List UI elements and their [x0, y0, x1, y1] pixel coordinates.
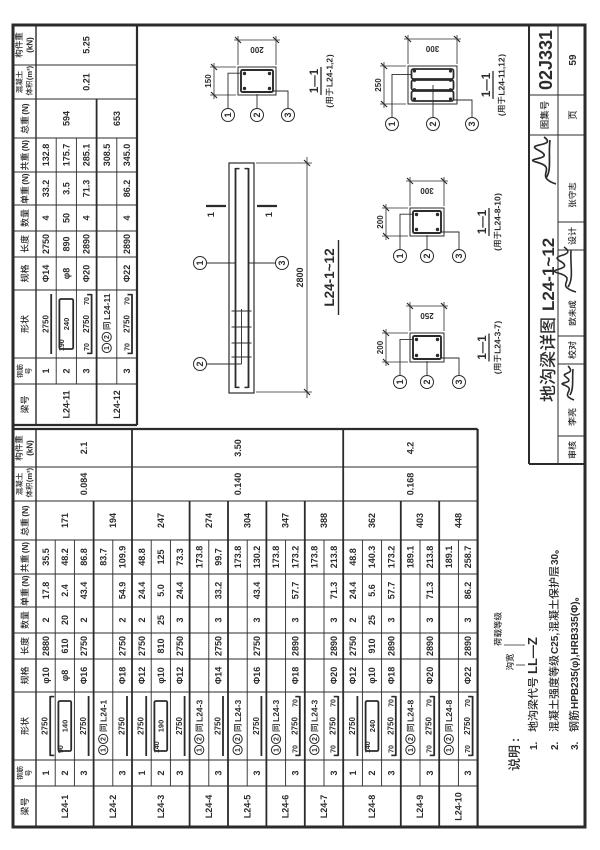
svg-text:189.1: 189.1	[406, 546, 416, 569]
svg-text:2: 2	[348, 617, 358, 622]
svg-text:3: 3	[290, 770, 300, 775]
svg-text:109.9: 109.9	[118, 546, 128, 569]
svg-text:L24-7: L24-7	[319, 795, 329, 819]
svg-text:Φ20: Φ20	[82, 265, 92, 282]
svg-text:71.3: 71.3	[425, 582, 435, 600]
svg-text:2: 2	[446, 737, 453, 741]
svg-text:2: 2	[235, 737, 242, 741]
svg-text:25: 25	[156, 615, 166, 625]
svg-text:2.4: 2.4	[60, 584, 70, 597]
svg-text:125: 125	[156, 549, 166, 564]
svg-text:3: 3	[82, 368, 92, 373]
svg-text:2750: 2750	[214, 717, 223, 735]
svg-text:L24-1: L24-1	[98, 700, 108, 722]
svg-text:2750: 2750	[41, 234, 51, 254]
svg-text:2890: 2890	[82, 234, 92, 254]
svg-text:2890: 2890	[290, 636, 300, 656]
svg-text:2: 2	[408, 737, 415, 741]
svg-text:300: 300	[420, 186, 434, 195]
svg-text:70: 70	[427, 699, 434, 707]
svg-text:2880: 2880	[41, 636, 51, 656]
svg-text:L24-1~12: L24-1~12	[322, 248, 337, 306]
svg-text:2750: 2750	[118, 717, 127, 735]
svg-text:24.4: 24.4	[348, 582, 358, 600]
svg-text:Φ14: Φ14	[214, 667, 224, 684]
svg-text:2750: 2750	[463, 717, 472, 735]
svg-text:L24-10: L24-10	[454, 792, 464, 821]
svg-text:2750: 2750	[348, 717, 357, 735]
svg-text:φ10: φ10	[156, 667, 166, 683]
svg-text:L24-6: L24-6	[281, 795, 291, 819]
svg-text:1: 1	[104, 346, 111, 350]
svg-text:2800: 2800	[295, 267, 305, 287]
svg-text:L24-8-10: L24-8-10	[493, 196, 503, 231]
svg-text:2750: 2750	[41, 717, 50, 735]
svg-text:388: 388	[319, 513, 329, 528]
svg-text:(: (	[325, 105, 335, 108]
svg-text:173.8: 173.8	[310, 546, 320, 569]
svg-text:1: 1	[235, 748, 242, 752]
svg-text:190: 190	[157, 720, 166, 733]
svg-text:130.2: 130.2	[252, 546, 262, 569]
svg-text:258.7: 258.7	[463, 546, 473, 569]
svg-text:403: 403	[415, 513, 425, 528]
svg-text:48.8: 48.8	[348, 548, 358, 566]
svg-text:L24-9: L24-9	[415, 795, 425, 819]
svg-text:Φ20: Φ20	[329, 667, 339, 684]
svg-text:213.8: 213.8	[425, 546, 435, 569]
svg-text:70: 70	[331, 699, 338, 707]
svg-text:448: 448	[454, 513, 464, 528]
svg-text:3: 3	[252, 617, 262, 622]
svg-text:1: 1	[137, 770, 147, 775]
svg-text:173.8: 173.8	[271, 546, 281, 569]
svg-text:Φ18: Φ18	[386, 667, 396, 684]
svg-text:3: 3	[175, 770, 185, 775]
svg-text:189.1: 189.1	[444, 546, 454, 569]
svg-text:2: 2	[118, 617, 128, 622]
svg-text:70: 70	[465, 699, 472, 707]
svg-text:3: 3	[454, 379, 464, 384]
svg-text::: :	[508, 738, 522, 742]
svg-text:90: 90	[58, 745, 65, 753]
svg-text:810: 810	[156, 638, 166, 653]
svg-text:5.0: 5.0	[156, 584, 166, 597]
svg-text:φ8: φ8	[62, 268, 72, 279]
svg-text:2750: 2750	[175, 717, 184, 735]
svg-text:285.1: 285.1	[82, 144, 92, 167]
svg-text:2890: 2890	[425, 636, 435, 656]
svg-text:L24-1~12: L24-1~12	[539, 238, 558, 311]
svg-text:3: 3	[122, 368, 132, 373]
svg-text:2750: 2750	[425, 717, 434, 735]
svg-text:φ8: φ8	[60, 670, 70, 681]
svg-text:1: 1	[41, 770, 51, 775]
svg-text:2: 2	[60, 770, 70, 775]
svg-text:Φ12: Φ12	[137, 667, 147, 684]
svg-text:Φ14: Φ14	[41, 265, 51, 282]
svg-text:653: 653	[112, 111, 122, 126]
svg-text:73.3: 73.3	[175, 548, 185, 566]
svg-text:308.5: 308.5	[102, 144, 112, 167]
svg-text:1: 1	[101, 748, 108, 752]
svg-text:33.2: 33.2	[214, 582, 224, 600]
svg-text:Φ16: Φ16	[252, 667, 262, 684]
svg-text:φ10: φ10	[41, 667, 51, 683]
svg-text:(m³): (m³)	[25, 467, 34, 482]
svg-text:594: 594	[62, 111, 72, 126]
svg-text:70: 70	[84, 297, 91, 305]
svg-text:Φ22: Φ22	[463, 667, 473, 684]
svg-text:1.: 1.	[529, 741, 540, 750]
svg-text:L24-3: L24-3	[310, 700, 320, 722]
svg-text:200: 200	[250, 45, 264, 54]
svg-text:3: 3	[386, 770, 396, 775]
svg-text:2: 2	[79, 617, 89, 622]
svg-text:Φ16: Φ16	[79, 667, 89, 684]
svg-text:304: 304	[242, 513, 252, 528]
svg-text:362: 362	[367, 513, 377, 528]
svg-text:Φ12: Φ12	[175, 667, 185, 684]
svg-text:140: 140	[154, 741, 161, 753]
svg-text:3: 3	[290, 617, 300, 622]
svg-text:300: 300	[425, 44, 439, 53]
svg-text:0.21: 0.21	[82, 73, 92, 91]
svg-text:200: 200	[376, 340, 385, 354]
svg-text:2: 2	[137, 617, 147, 622]
svg-text:L24-3: L24-3	[194, 700, 204, 722]
svg-text:2: 2	[156, 770, 166, 775]
svg-text:LL—Z: LL—Z	[525, 637, 540, 674]
svg-text:): )	[493, 193, 503, 196]
svg-text:2750: 2750	[386, 717, 395, 735]
svg-text:3: 3	[214, 770, 224, 775]
svg-text:70: 70	[388, 745, 395, 753]
svg-text:L24-8: L24-8	[367, 795, 377, 819]
svg-text:2890: 2890	[329, 636, 339, 656]
svg-text:(N): (N)	[21, 575, 30, 586]
svg-text:2750: 2750	[79, 636, 89, 656]
svg-text:171: 171	[60, 513, 70, 528]
svg-text:L24-3: L24-3	[233, 700, 243, 722]
svg-text:20: 20	[60, 615, 70, 625]
svg-text:L24-11: L24-11	[102, 293, 112, 320]
svg-text:2: 2	[195, 361, 205, 366]
svg-text:250: 250	[420, 311, 434, 320]
svg-text:200: 200	[376, 215, 385, 229]
svg-text:1—1: 1—1	[477, 335, 489, 360]
svg-text:3: 3	[454, 253, 464, 258]
svg-text:2750: 2750	[123, 315, 132, 333]
svg-text:1: 1	[348, 770, 358, 775]
svg-text:3: 3	[283, 112, 293, 117]
svg-text:2750: 2750	[42, 315, 51, 333]
svg-text:83.7: 83.7	[98, 548, 108, 566]
svg-text:2: 2	[62, 368, 72, 373]
svg-text:274: 274	[204, 513, 214, 528]
svg-text:3.: 3.	[570, 741, 581, 750]
svg-text:1—1: 1—1	[309, 68, 321, 93]
svg-text:2750: 2750	[214, 636, 224, 656]
svg-text:2750: 2750	[252, 636, 262, 656]
svg-text:86.2: 86.2	[463, 582, 473, 600]
svg-text:L24-8: L24-8	[444, 700, 454, 722]
svg-text:1: 1	[395, 253, 405, 258]
svg-text:3: 3	[467, 121, 477, 126]
svg-text:0.140: 0.140	[233, 473, 243, 496]
svg-text:2750: 2750	[290, 717, 299, 735]
svg-text:L24-4: L24-4	[204, 795, 214, 819]
svg-text:4: 4	[82, 215, 92, 220]
svg-text:L24-3: L24-3	[156, 795, 166, 819]
svg-text:173.8: 173.8	[194, 546, 204, 569]
svg-text:5.25: 5.25	[82, 36, 92, 54]
svg-text:1: 1	[264, 211, 275, 217]
svg-text:(m³): (m³)	[25, 65, 34, 80]
svg-text:25: 25	[367, 615, 377, 625]
svg-text:213.8: 213.8	[329, 546, 339, 569]
svg-text:70: 70	[292, 699, 299, 707]
svg-text:1: 1	[197, 748, 204, 752]
svg-text:L24-2: L24-2	[108, 795, 118, 819]
svg-text:173.2: 173.2	[386, 546, 396, 569]
svg-text:33.2: 33.2	[41, 180, 51, 198]
svg-text:3: 3	[252, 770, 262, 775]
svg-text:φ10: φ10	[367, 667, 377, 683]
svg-text:2750: 2750	[252, 717, 261, 735]
svg-text:2: 2	[197, 737, 204, 741]
svg-text:Φ18: Φ18	[290, 667, 300, 684]
svg-text:3: 3	[214, 617, 224, 622]
svg-text:70: 70	[292, 745, 299, 753]
svg-text:L24-5: L24-5	[242, 795, 252, 819]
svg-text:86.2: 86.2	[122, 180, 132, 198]
svg-text:194: 194	[108, 513, 118, 528]
svg-text:3: 3	[277, 260, 287, 265]
svg-text:1: 1	[206, 211, 217, 217]
svg-text:(N): (N)	[21, 140, 30, 151]
svg-text:70: 70	[427, 745, 434, 753]
svg-text:): )	[493, 321, 503, 324]
svg-text:2: 2	[312, 737, 319, 741]
svg-text:L24-8: L24-8	[406, 700, 416, 722]
svg-text:3.5: 3.5	[62, 182, 72, 195]
svg-text:140.3: 140.3	[367, 546, 377, 569]
svg-text:70: 70	[125, 297, 132, 305]
svg-text:2750: 2750	[118, 636, 128, 656]
svg-text:30。: 30。	[550, 544, 561, 565]
svg-text:L24-3: L24-3	[271, 700, 281, 722]
svg-text:5.6: 5.6	[367, 584, 377, 597]
svg-text:43.4: 43.4	[79, 582, 89, 600]
svg-text:50: 50	[62, 213, 72, 223]
svg-text:71.3: 71.3	[82, 180, 92, 198]
svg-text:1: 1	[408, 748, 415, 752]
svg-text:HPB235(φ),HRB335(Φ)。: HPB235(φ),HRB335(Φ)。	[570, 591, 581, 709]
svg-text:1—1: 1—1	[477, 209, 489, 234]
svg-text:2: 2	[252, 112, 262, 117]
svg-text:2: 2	[428, 121, 438, 126]
svg-text:240: 240	[62, 318, 71, 331]
svg-text:3: 3	[118, 770, 128, 775]
svg-text:2: 2	[273, 737, 280, 741]
svg-text:(: (	[493, 371, 503, 374]
svg-text:Φ18: Φ18	[118, 667, 128, 684]
svg-text:54.9: 54.9	[118, 582, 128, 600]
svg-text:150: 150	[204, 74, 213, 88]
svg-text:02J331: 02J331	[536, 30, 556, 90]
svg-text:17.8: 17.8	[41, 582, 51, 600]
svg-text:140: 140	[61, 720, 70, 733]
svg-text:4: 4	[122, 215, 132, 220]
svg-text:3: 3	[463, 770, 473, 775]
svg-text:L24-1: L24-1	[60, 795, 70, 819]
svg-text:3: 3	[463, 617, 473, 622]
svg-text:71.3: 71.3	[329, 582, 339, 600]
svg-text:173.2: 173.2	[290, 546, 300, 569]
svg-text:2890: 2890	[386, 636, 396, 656]
svg-text:(N): (N)	[21, 505, 30, 516]
svg-text:70: 70	[84, 343, 91, 351]
svg-text:24.4: 24.4	[137, 582, 147, 600]
svg-text:140: 140	[365, 741, 372, 753]
svg-text:1: 1	[273, 748, 280, 752]
svg-text:(kN): (kN)	[26, 37, 35, 53]
svg-text:3: 3	[175, 617, 185, 622]
svg-text:240: 240	[368, 720, 377, 733]
svg-text:(kN): (kN)	[26, 440, 35, 456]
svg-text:1: 1	[387, 121, 397, 126]
svg-text:2750: 2750	[79, 717, 88, 735]
svg-text:610: 610	[60, 638, 70, 653]
svg-text:175.7: 175.7	[62, 144, 72, 167]
svg-text:3: 3	[329, 770, 339, 775]
svg-text:C25,: C25,	[550, 633, 561, 654]
svg-text:1: 1	[395, 379, 405, 384]
svg-text:3.50: 3.50	[233, 439, 243, 457]
svg-text:3: 3	[79, 770, 89, 775]
svg-text:2750: 2750	[329, 717, 338, 735]
svg-text:57.7: 57.7	[386, 582, 396, 600]
svg-text:48.8: 48.8	[137, 548, 147, 566]
svg-text:2890: 2890	[122, 234, 132, 254]
svg-text:0.168: 0.168	[406, 473, 416, 496]
svg-text:): )	[497, 54, 507, 57]
svg-text:L24-1,2: L24-1,2	[325, 58, 335, 88]
svg-text:Φ22: Φ22	[122, 265, 132, 282]
svg-text:4.2: 4.2	[406, 442, 416, 455]
svg-text:L24-11,12: L24-11,12	[497, 57, 507, 96]
svg-text:70: 70	[465, 745, 472, 753]
svg-text:): )	[325, 54, 335, 57]
svg-text:(N): (N)	[21, 542, 30, 553]
svg-text:3: 3	[425, 617, 435, 622]
svg-text:2: 2	[367, 770, 377, 775]
svg-text:70: 70	[125, 343, 132, 351]
svg-text:57.7: 57.7	[290, 582, 300, 600]
svg-text:L24-12: L24-12	[112, 390, 122, 419]
svg-text:86.8: 86.8	[79, 548, 89, 566]
svg-text:247: 247	[156, 513, 166, 528]
svg-text:(: (	[493, 248, 503, 251]
svg-text:70: 70	[388, 699, 395, 707]
svg-text:190: 190	[59, 339, 66, 351]
svg-text:173.8: 173.8	[233, 546, 243, 569]
svg-text:99.7: 99.7	[214, 548, 224, 566]
svg-text:(N): (N)	[21, 173, 30, 184]
svg-text:2: 2	[422, 253, 432, 258]
svg-text:2.1: 2.1	[79, 442, 89, 455]
svg-text:35.5: 35.5	[41, 548, 51, 566]
svg-text:2: 2	[104, 335, 111, 339]
svg-text:132.8: 132.8	[41, 144, 51, 167]
svg-text:43.4: 43.4	[252, 582, 262, 600]
svg-text:3: 3	[329, 617, 339, 622]
svg-text:L24-3-7: L24-3-7	[493, 324, 503, 354]
svg-text:2750: 2750	[137, 636, 147, 656]
svg-text:Φ20: Φ20	[425, 667, 435, 684]
svg-text:2750: 2750	[82, 315, 91, 333]
svg-text:48.2: 48.2	[60, 548, 70, 566]
svg-text:1—1: 1—1	[481, 72, 493, 97]
svg-text:2750: 2750	[348, 636, 358, 656]
svg-text:3: 3	[386, 617, 396, 622]
svg-text:1: 1	[446, 748, 453, 752]
svg-text:910: 910	[367, 638, 377, 653]
svg-text:345.0: 345.0	[122, 144, 132, 167]
svg-text:2.: 2.	[550, 741, 561, 750]
svg-text:1: 1	[195, 260, 205, 265]
svg-text:70: 70	[331, 745, 338, 753]
svg-text:2: 2	[101, 737, 108, 741]
svg-text:4: 4	[41, 215, 51, 220]
svg-text:(: (	[497, 113, 507, 116]
svg-text:3: 3	[425, 770, 435, 775]
svg-text:Φ12: Φ12	[348, 667, 358, 684]
svg-text:59: 59	[568, 54, 579, 66]
svg-text:1: 1	[223, 112, 233, 117]
svg-text:250: 250	[374, 78, 383, 92]
svg-text:L24-11: L24-11	[62, 390, 72, 418]
svg-text:347: 347	[281, 513, 291, 528]
svg-text:2: 2	[41, 617, 51, 622]
svg-text:2750: 2750	[137, 717, 146, 735]
svg-text:0.084: 0.084	[79, 473, 89, 496]
svg-text:2890: 2890	[463, 636, 473, 656]
svg-text:1: 1	[312, 748, 319, 752]
svg-text:24.4: 24.4	[175, 582, 185, 600]
svg-text:2: 2	[422, 379, 432, 384]
svg-text:890: 890	[62, 236, 72, 251]
svg-text:2750: 2750	[175, 636, 185, 656]
svg-text:(N): (N)	[21, 103, 30, 114]
svg-text:1: 1	[41, 368, 51, 373]
